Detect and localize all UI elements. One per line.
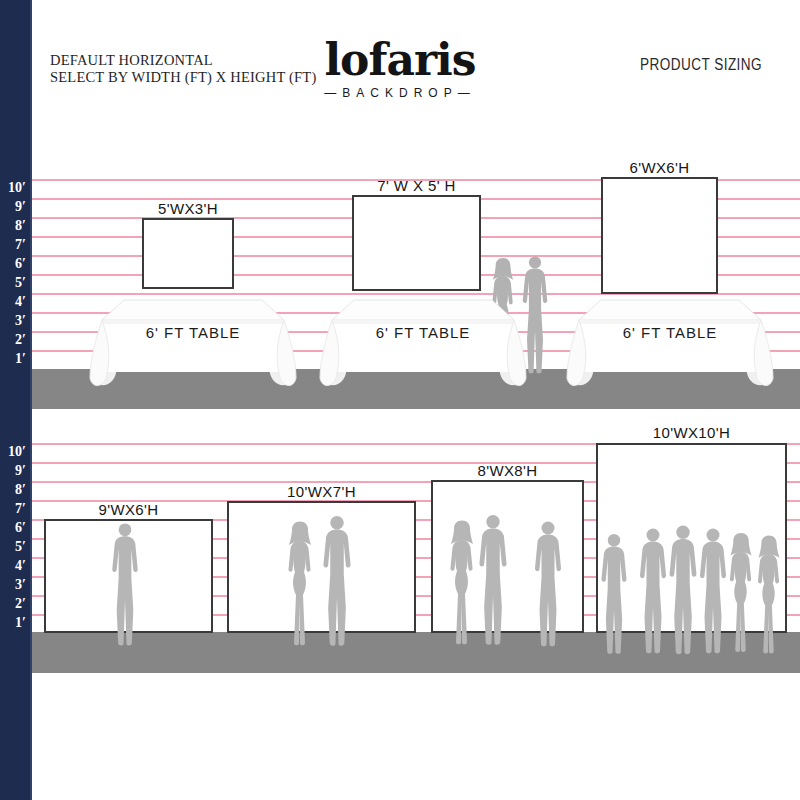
table-6ft: 6' FT TABLE <box>88 298 298 390</box>
backdrop-size-label: 8'WX8'H <box>411 463 604 479</box>
header-line2: SELECT BY WIDTH (FT) X HEIGHT (FT) <box>50 69 316 86</box>
table-label: 6' FT TABLE <box>88 324 298 341</box>
backdrop-6x6 <box>601 177 718 294</box>
backdrop-size-label: 5'WX3'H <box>122 201 254 217</box>
backdrop-7x5 <box>352 195 481 291</box>
tablecloth-graphic <box>88 298 298 390</box>
ruler-label: 1′ <box>0 351 26 367</box>
tablecloth-graphic <box>318 298 528 390</box>
table-label: 6' FT TABLE <box>318 324 528 341</box>
header-subtitle: DEFAULT HORIZONTAL SELECT BY WIDTH (FT) … <box>50 52 316 86</box>
ruler-label: 5′ <box>0 539 26 555</box>
header-line1: DEFAULT HORIZONTAL <box>50 52 316 69</box>
ruler-label: 6′ <box>0 520 26 536</box>
ruler-label: 2′ <box>0 332 26 348</box>
table-6ft: 6' FT TABLE <box>565 298 775 390</box>
ruler-bar <box>0 0 32 800</box>
ruler-label: 1′ <box>0 615 26 631</box>
table-label: 6' FT TABLE <box>565 324 775 341</box>
ruler-label: 5′ <box>0 275 26 291</box>
ruler-label: 3′ <box>0 313 26 329</box>
ruler-label: 3′ <box>0 577 26 593</box>
person-silhouette-man <box>100 522 150 649</box>
table-6ft: 6' FT TABLE <box>318 298 528 390</box>
person-silhouette-man <box>311 514 363 650</box>
person-silhouette-woman <box>745 534 793 658</box>
person-silhouette-man <box>467 512 519 650</box>
backdrop-size-label: 7' W X 5' H <box>332 178 501 194</box>
ruler-label: 6′ <box>0 256 26 272</box>
brand-name: lofaris <box>290 36 510 84</box>
ruler-label: 2′ <box>0 596 26 612</box>
tablecloth-graphic <box>565 298 775 390</box>
backdrop-size-label: 9'WX6'H <box>24 502 233 518</box>
brand-tagline: —BACKDROP— <box>290 86 510 100</box>
product-sizing-chart: DEFAULT HORIZONTAL SELECT BY WIDTH (FT) … <box>0 0 800 800</box>
ruler-label: 7′ <box>0 501 26 517</box>
backdrop-size-label: 10'WX10'H <box>576 425 800 441</box>
brand-logo: lofaris —BACKDROP— <box>290 36 510 100</box>
ruler-label: 4′ <box>0 294 26 310</box>
ruler-label: 10′ <box>0 444 26 460</box>
backdrop-size-label: 10'WX7'H <box>207 484 436 500</box>
ruler-label: 4′ <box>0 558 26 574</box>
backdrop-5x3 <box>142 218 234 289</box>
page-title: PRODUCT SIZING <box>640 56 776 74</box>
ruler-label: 8′ <box>0 218 26 234</box>
ruler-label: 9′ <box>0 199 26 215</box>
ruler-label: 7′ <box>0 237 26 253</box>
ruler-label: 8′ <box>0 482 26 498</box>
ruler-label: 10′ <box>0 180 26 196</box>
ruler-label: 9′ <box>0 463 26 479</box>
person-silhouette-man <box>523 520 573 650</box>
backdrop-size-label: 6'WX6'H <box>581 160 738 176</box>
